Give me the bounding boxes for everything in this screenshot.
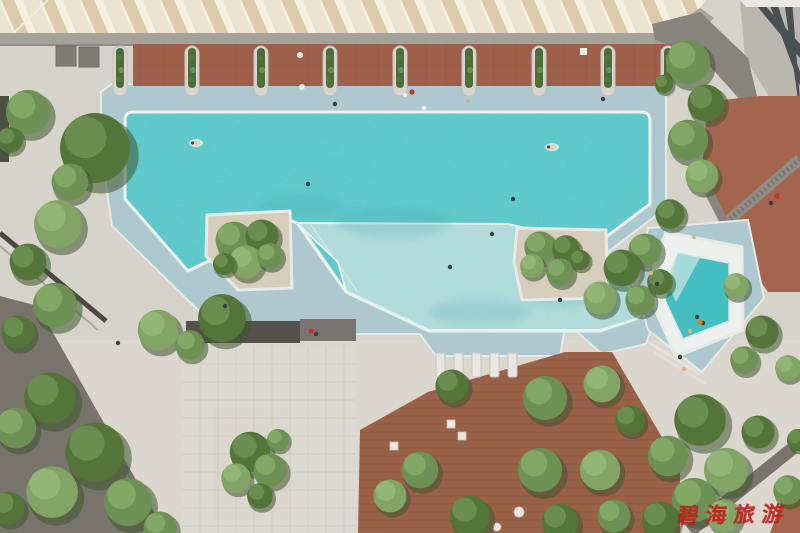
canopy-path — [300, 319, 356, 341]
aerial-photo: 碧海旅游 — [0, 0, 800, 533]
watermark-text: 碧海旅游 — [676, 498, 792, 530]
pool-scene — [0, 0, 800, 533]
